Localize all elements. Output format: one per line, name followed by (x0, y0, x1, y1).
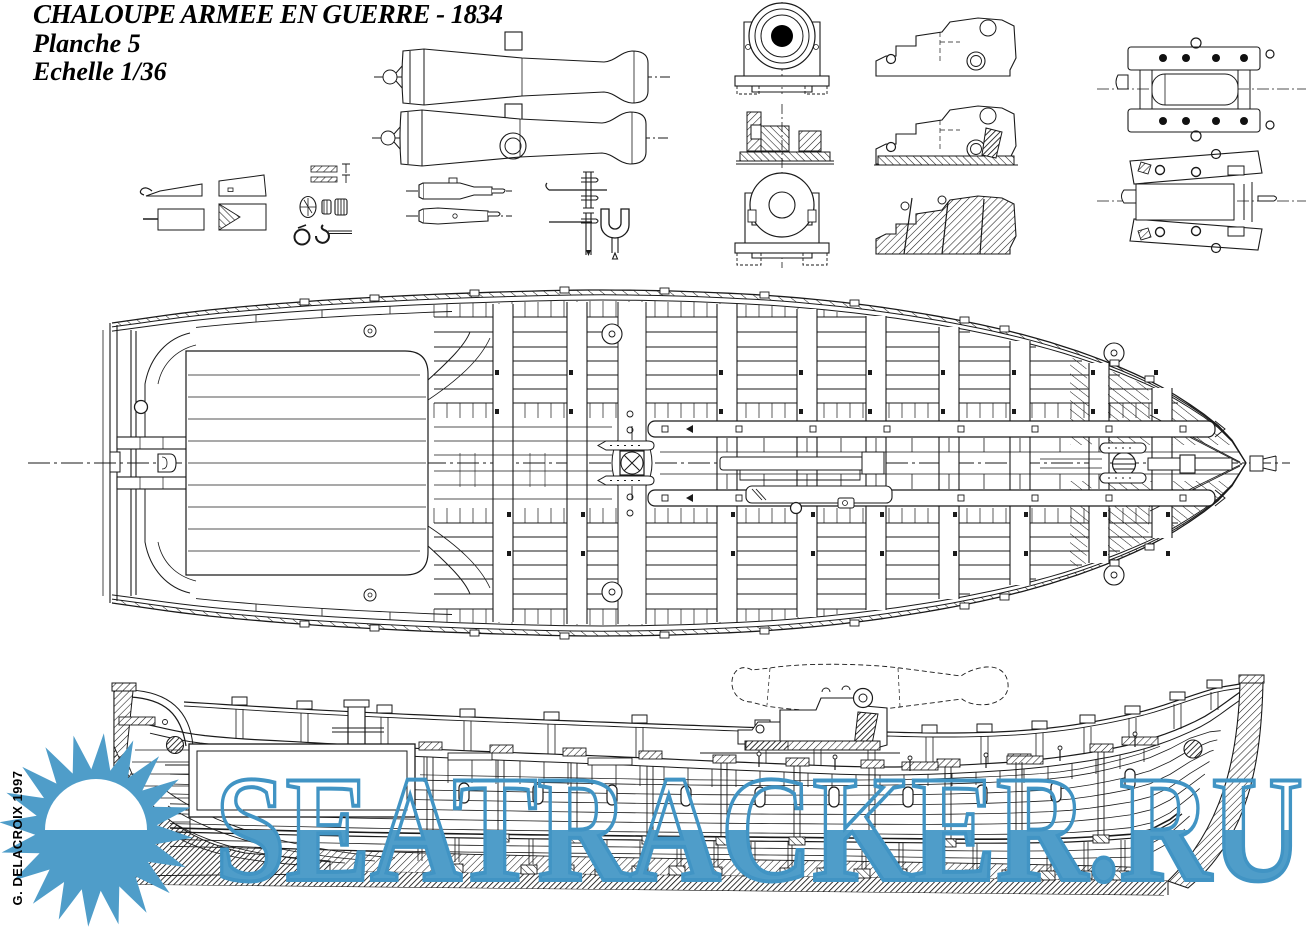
svg-text:Planche 5: Planche 5 (32, 29, 141, 58)
svg-text:SEATRACKER.RU: SEATRACKER.RU (215, 745, 1303, 913)
svg-text:G. DELACROIX 1997: G. DELACROIX 1997 (10, 771, 25, 906)
svg-text:Echelle 1/36: Echelle 1/36 (32, 57, 167, 86)
svg-text:CHALOUPE ARMEE EN GUERRE - 183: CHALOUPE ARMEE EN GUERRE - 1834 (33, 0, 503, 29)
